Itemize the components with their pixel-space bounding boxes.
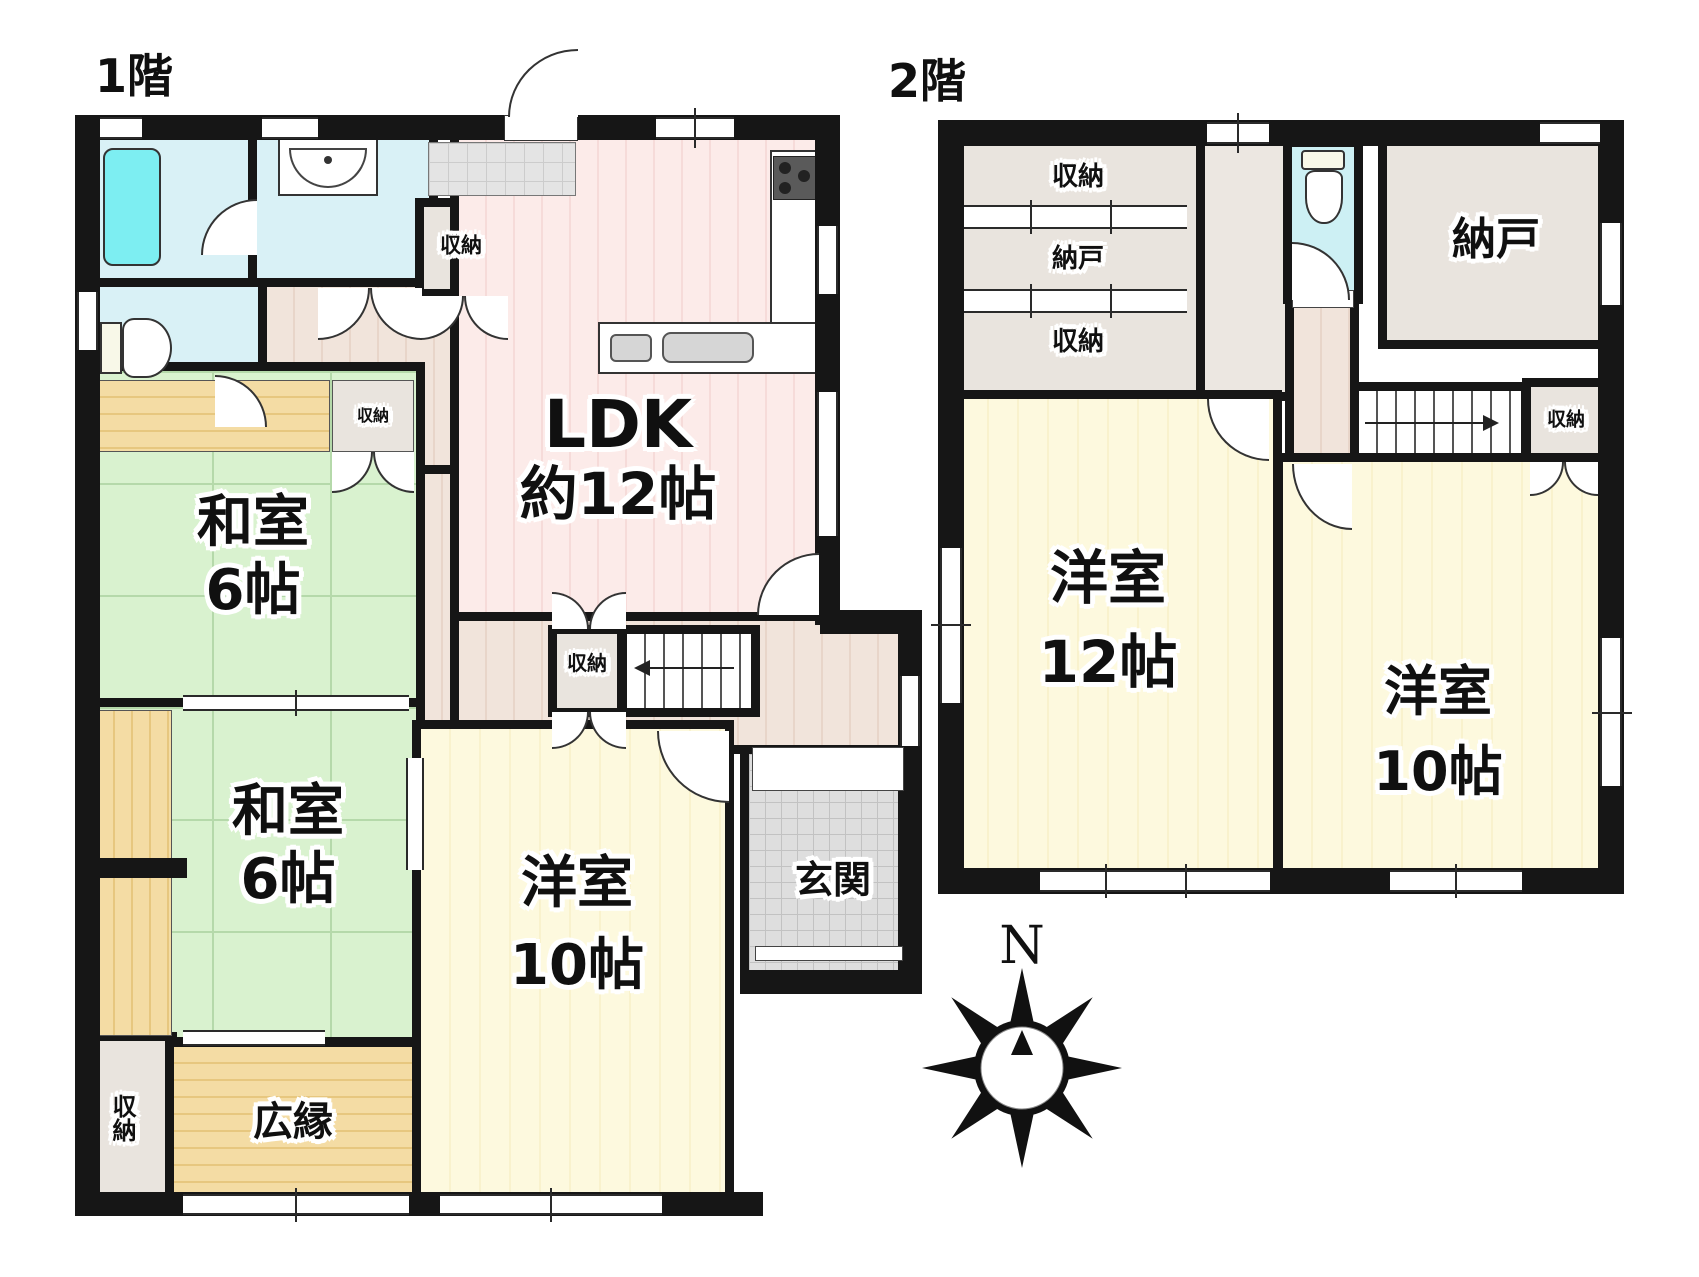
island-counter-top	[662, 332, 754, 363]
wall	[938, 120, 964, 894]
youshitsu10-2f-label: 洋室	[1384, 665, 1492, 719]
window	[817, 226, 838, 294]
door-arc-backdoor	[508, 49, 578, 117]
stairs-arrow-line	[1365, 422, 1485, 424]
storage-label: 収納	[1052, 164, 1104, 190]
washitsu2-size-label: 6帖	[241, 852, 336, 908]
compass-north-label: N	[999, 916, 1045, 976]
interior-opening	[406, 758, 424, 870]
youshitsu10-1f-size-label: 10帖	[510, 938, 644, 994]
youshitsu12-size-label: 12帖	[1039, 633, 1178, 691]
window-tick	[295, 1188, 297, 1222]
toilet-bowl-1f	[122, 318, 172, 378]
nando-2f-label: 納戸	[1452, 218, 1540, 262]
storage-label: 収納	[440, 236, 482, 257]
genkan-step	[752, 747, 904, 791]
window	[900, 676, 920, 746]
storage-label: 収納	[567, 653, 607, 673]
window	[100, 117, 142, 139]
sliding-door-opening	[959, 289, 1187, 313]
back-door-opening	[504, 115, 578, 141]
sliding-door-opening	[959, 205, 1187, 229]
floor-plan: 1階 2階	[0, 0, 1699, 1277]
storage-label: 収納	[1052, 329, 1104, 355]
toilet-tank-2f	[1301, 150, 1345, 170]
genkan-label: 玄関	[795, 861, 871, 899]
wall	[938, 120, 1624, 146]
toilet-tank-1f	[100, 322, 122, 374]
stove-icon	[773, 156, 818, 200]
compass-rose-icon	[917, 963, 1127, 1173]
washbasin-icon	[278, 138, 378, 196]
wall	[898, 610, 922, 994]
wall	[740, 970, 922, 994]
stairs-arrow-head-left	[634, 660, 650, 676]
wall	[75, 858, 187, 878]
window	[817, 392, 838, 536]
island-sink	[610, 334, 652, 362]
window-tick	[1030, 284, 1032, 318]
ldk-label: LDK	[544, 392, 692, 458]
window-tick	[1110, 284, 1112, 318]
wall	[815, 115, 840, 625]
nando-label: 納戸	[1052, 246, 1104, 272]
window-tick	[1592, 712, 1632, 714]
youshitsu10-2f-size-label: 10帖	[1373, 745, 1502, 799]
window-tick	[1237, 113, 1239, 153]
floor1-title: 1階	[95, 40, 173, 106]
storage-label: 収納	[1547, 411, 1585, 430]
storage-label: 収納	[110, 1094, 134, 1142]
entry-step	[755, 946, 903, 961]
tokonoma-band	[98, 380, 330, 452]
window-tick	[1110, 200, 1112, 234]
stairs-arrow-head-right	[1483, 415, 1499, 431]
washitsu1-label: 和室	[197, 495, 309, 551]
stair-hall-2f	[1285, 296, 1359, 476]
window	[77, 292, 98, 350]
window	[1540, 122, 1600, 144]
window-tick	[694, 108, 696, 148]
window	[1600, 223, 1622, 305]
washitsu2-label: 和室	[232, 784, 344, 840]
wall	[75, 115, 100, 1215]
bathtub-icon	[103, 148, 161, 266]
window-tick	[1455, 864, 1457, 898]
hiroen-label: 広縁	[253, 1102, 333, 1142]
window-tick	[931, 624, 971, 626]
ldk-size-label: 約12帖	[520, 465, 717, 523]
storage-label: 収納	[357, 408, 389, 424]
youshitsu12-label: 洋室	[1050, 549, 1166, 607]
window	[1040, 870, 1270, 892]
engawa-window	[183, 1030, 325, 1046]
window-tick	[550, 1188, 552, 1222]
window-tick	[295, 690, 297, 716]
window-tick	[1105, 864, 1107, 898]
window-tick	[1030, 200, 1032, 234]
kitchen-island	[598, 322, 820, 374]
stairs-arrow-line	[648, 667, 734, 669]
window-tick	[1185, 864, 1187, 898]
toilet-bowl-2f	[1305, 170, 1343, 224]
floor2-title: 2階	[888, 45, 966, 111]
window	[262, 117, 318, 139]
kitchen-mat	[428, 142, 576, 196]
washitsu1-size-label: 6帖	[206, 563, 301, 619]
youshitsu10-1f-label: 洋室	[521, 856, 633, 912]
